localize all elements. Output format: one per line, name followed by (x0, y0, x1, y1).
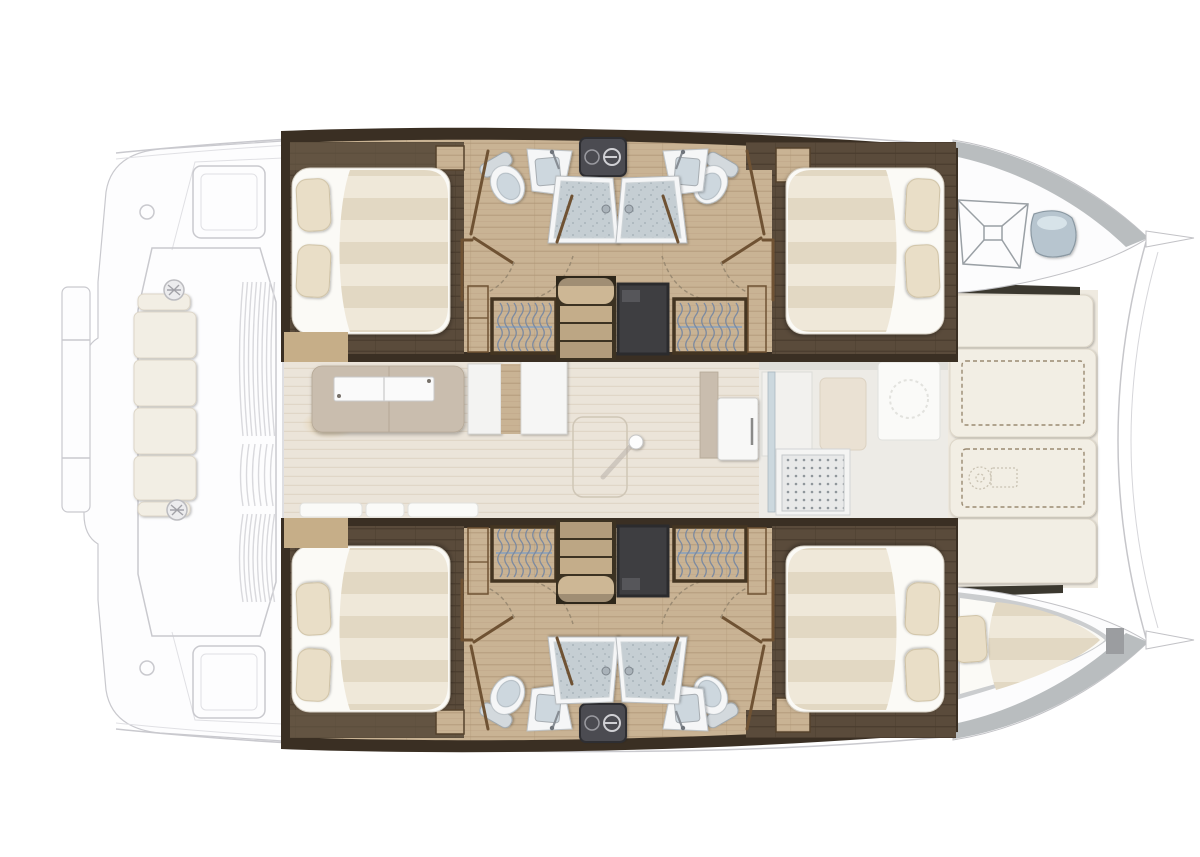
compression-post (629, 435, 643, 449)
bench-cushion (134, 408, 196, 454)
floorplan-canvas (0, 0, 1200, 857)
winch-icon (167, 500, 187, 520)
aft-cockpit-bench (134, 294, 196, 516)
forward-cockpit (759, 362, 948, 518)
bow-tip-locker (1106, 628, 1124, 654)
double-bed (786, 168, 944, 334)
mattress (340, 170, 449, 332)
saloon-cabinet (468, 364, 501, 434)
sunpad-cushion (950, 439, 1096, 517)
cockpit-grate (782, 455, 844, 511)
foredeck-sunpads (946, 283, 1098, 597)
catamaran-floorplan (0, 0, 1200, 857)
appliance-unit (580, 138, 626, 176)
shower-door-knob (602, 205, 610, 213)
aft-cabin (290, 142, 464, 354)
saloon-cabinet (521, 358, 567, 434)
forward-cabin (746, 142, 956, 354)
bow-seat-pad (1031, 211, 1076, 257)
hull-entry-sill (284, 332, 348, 362)
bench-cushion (134, 456, 196, 500)
sunpad-cushion (950, 519, 1096, 583)
pillow (296, 178, 332, 232)
cockpit-table (878, 362, 940, 440)
door-track (768, 372, 775, 512)
shelf-column (748, 286, 766, 352)
port-hull-interior (281, 128, 958, 362)
technical-space (618, 284, 668, 354)
saloon-bench (366, 503, 404, 517)
double-bed (292, 168, 450, 334)
sunpad-cushion (950, 295, 1093, 347)
saloon-bench (408, 503, 478, 517)
companionway-stairs (556, 276, 616, 360)
bench-cushion (134, 312, 196, 358)
saloon-cabinet-wood (501, 364, 521, 434)
swim-platform-steps (62, 287, 90, 512)
shower-door-knob (625, 205, 633, 213)
starboard-hull-interior (281, 518, 958, 752)
bench-cushion (134, 360, 196, 406)
saloon-bench (300, 503, 362, 517)
saloon (284, 358, 759, 518)
winch-icon (164, 280, 184, 300)
shelf-column (468, 286, 488, 352)
cockpit-seat-cushion (820, 378, 866, 450)
sunpad-cushion (950, 349, 1096, 437)
pillow (296, 244, 332, 298)
hull-entry-sill (284, 518, 348, 548)
shelf (436, 146, 464, 170)
nav-cabinet (700, 372, 718, 458)
galley-block (312, 366, 464, 432)
